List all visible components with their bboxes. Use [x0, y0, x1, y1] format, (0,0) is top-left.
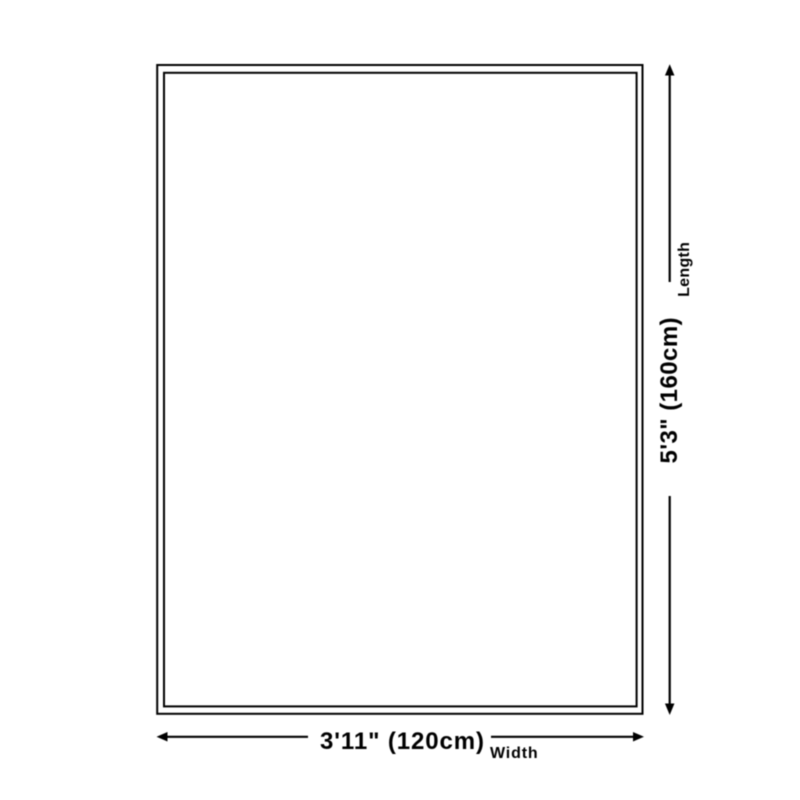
svg-text:3'11" (120cm): 3'11" (120cm) — [320, 728, 485, 755]
svg-text:Width: Width — [490, 745, 539, 762]
svg-text:5'3" (160cm): 5'3" (160cm) — [656, 317, 683, 464]
svg-text:Length: Length — [676, 242, 693, 297]
